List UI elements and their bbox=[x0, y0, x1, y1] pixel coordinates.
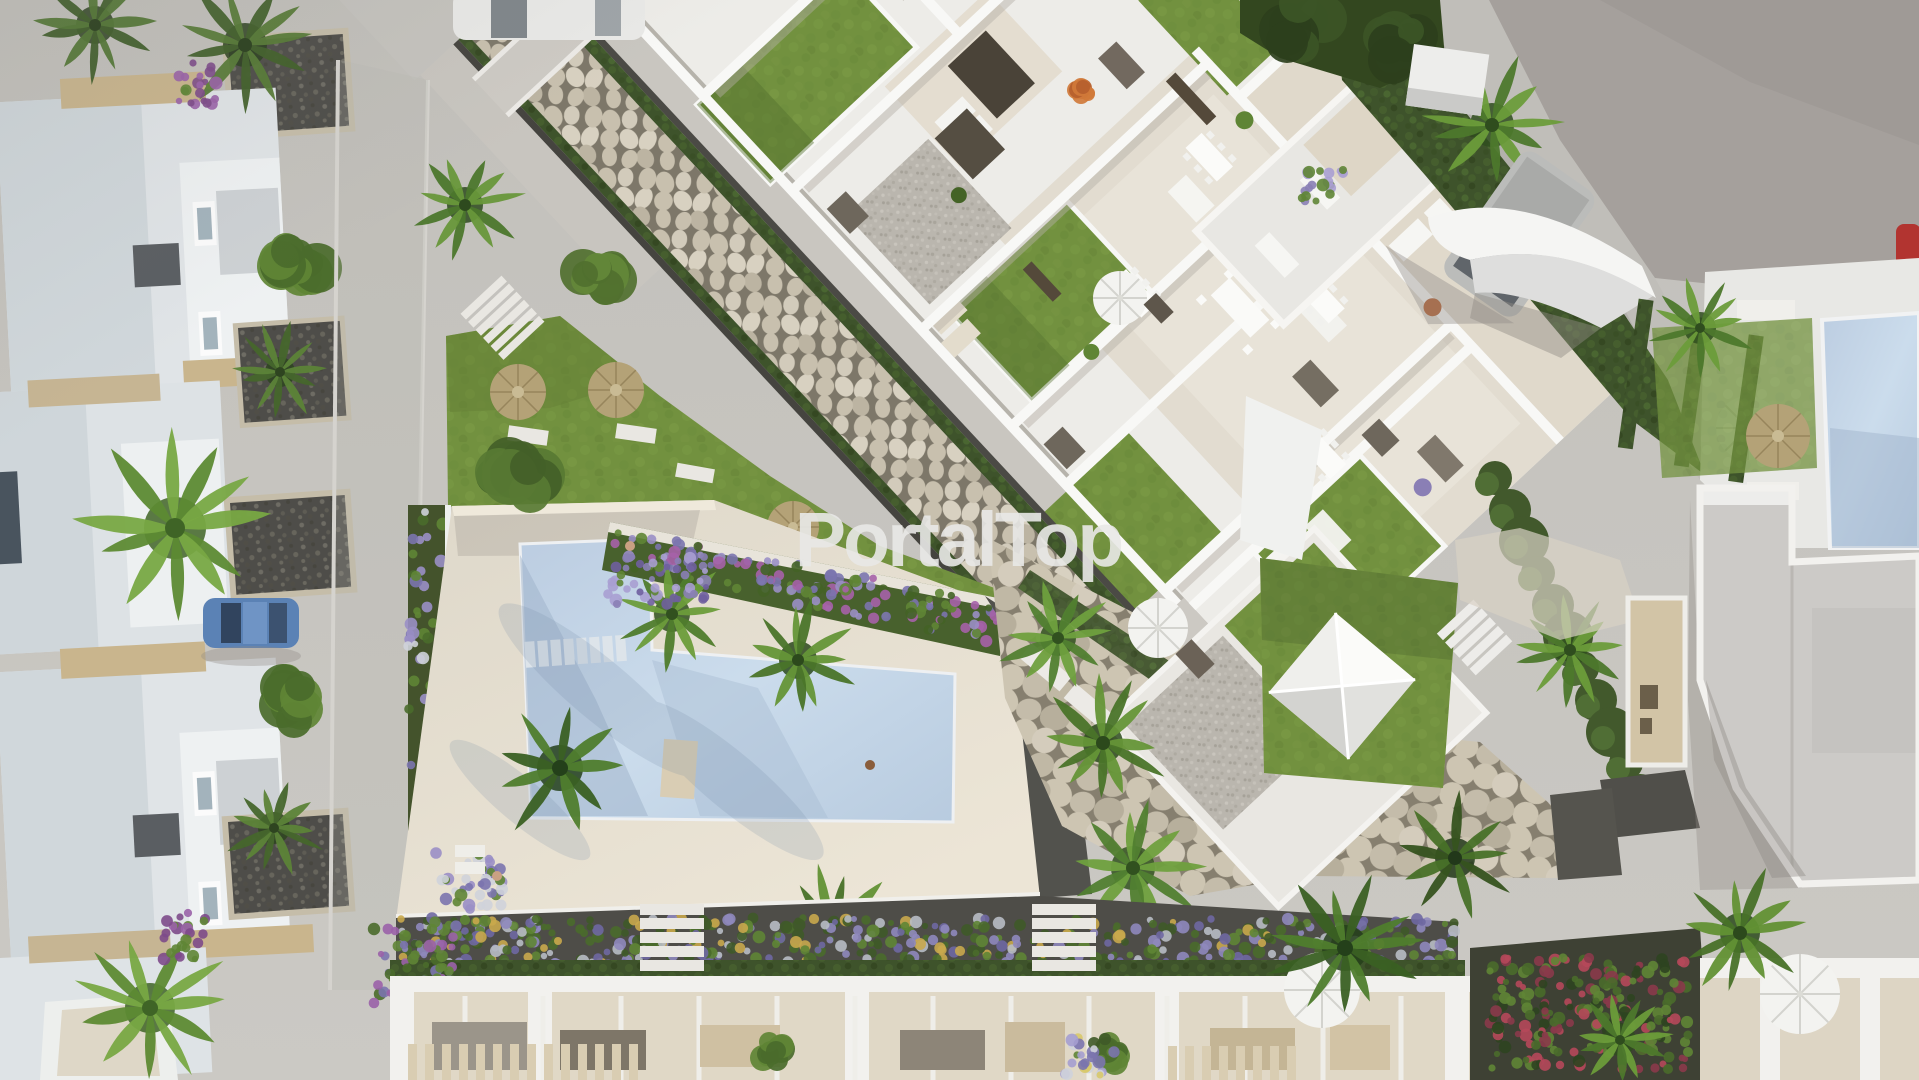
svg-text:PortalTop: PortalTop bbox=[795, 497, 1122, 583]
